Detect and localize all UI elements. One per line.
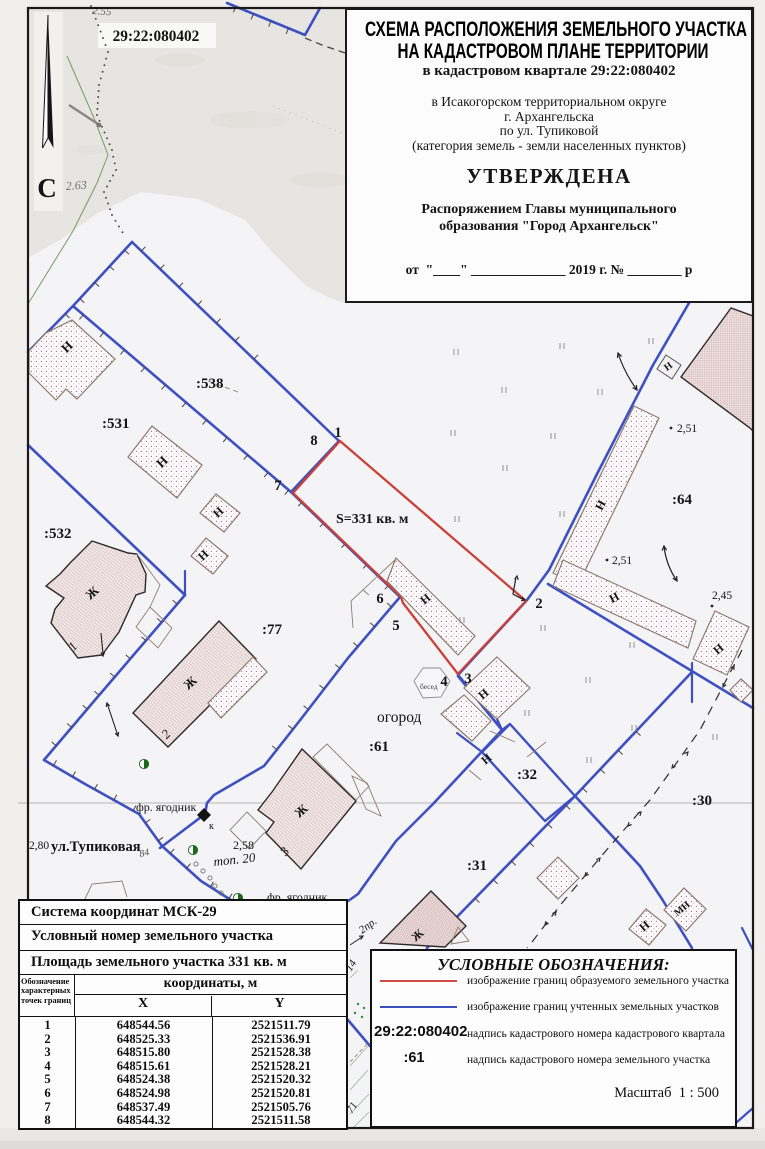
svg-text:29:22:080402: 29:22:080402 bbox=[113, 28, 200, 45]
svg-text::61: :61 bbox=[369, 739, 389, 755]
svg-text:С: С bbox=[37, 173, 57, 203]
svg-text::538: :538 bbox=[196, 376, 224, 392]
svg-text:2,80: 2,80 bbox=[29, 840, 49, 852]
svg-text:1: 1 bbox=[334, 425, 341, 441]
svg-text:фр. ягодник: фр. ягодник bbox=[136, 800, 197, 814]
svg-text:бесед: бесед bbox=[420, 682, 438, 691]
svg-text:СХЕМА РАСПОЛОЖЕНИЯ ЗЕМЕЛЬНОГО: СХЕМА РАСПОЛОЖЕНИЯ ЗЕМЕЛЬНОГО УЧАСТКА bbox=[365, 18, 747, 41]
svg-text:2: 2 bbox=[535, 596, 542, 612]
svg-text:ул.Тупиковая: ул.Тупиковая bbox=[51, 839, 141, 855]
svg-text::77: :77 bbox=[262, 622, 282, 638]
svg-text:2,51: 2,51 bbox=[677, 423, 697, 435]
svg-text:2,51: 2,51 bbox=[612, 555, 632, 567]
svg-text:7: 7 bbox=[274, 478, 281, 494]
svg-text:8: 8 bbox=[310, 433, 317, 449]
svg-text:5: 5 bbox=[392, 618, 399, 634]
svg-text::531: :531 bbox=[102, 416, 130, 432]
svg-text:4: 4 bbox=[440, 674, 447, 690]
svg-text::532: :532 bbox=[44, 526, 72, 542]
svg-text:3: 3 bbox=[464, 671, 471, 687]
svg-text:к: к bbox=[209, 821, 214, 832]
svg-text:2.63: 2.63 bbox=[65, 178, 87, 193]
svg-text::30: :30 bbox=[692, 793, 712, 809]
svg-text:огород: огород bbox=[377, 709, 422, 726]
svg-text::32: :32 bbox=[517, 767, 537, 783]
svg-text:6: 6 bbox=[376, 591, 383, 607]
svg-text:S=331 кв. м: S=331 кв. м bbox=[336, 512, 409, 527]
svg-text::31: :31 bbox=[467, 858, 487, 874]
svg-text:НА КАДАСТРОВОМ ПЛАНЕ ТЕРРИТОРИ: НА КАДАСТРОВОМ ПЛАНЕ ТЕРРИТОРИИ bbox=[398, 40, 709, 63]
svg-text:2,45: 2,45 bbox=[712, 590, 732, 602]
svg-text::64: :64 bbox=[672, 492, 692, 508]
